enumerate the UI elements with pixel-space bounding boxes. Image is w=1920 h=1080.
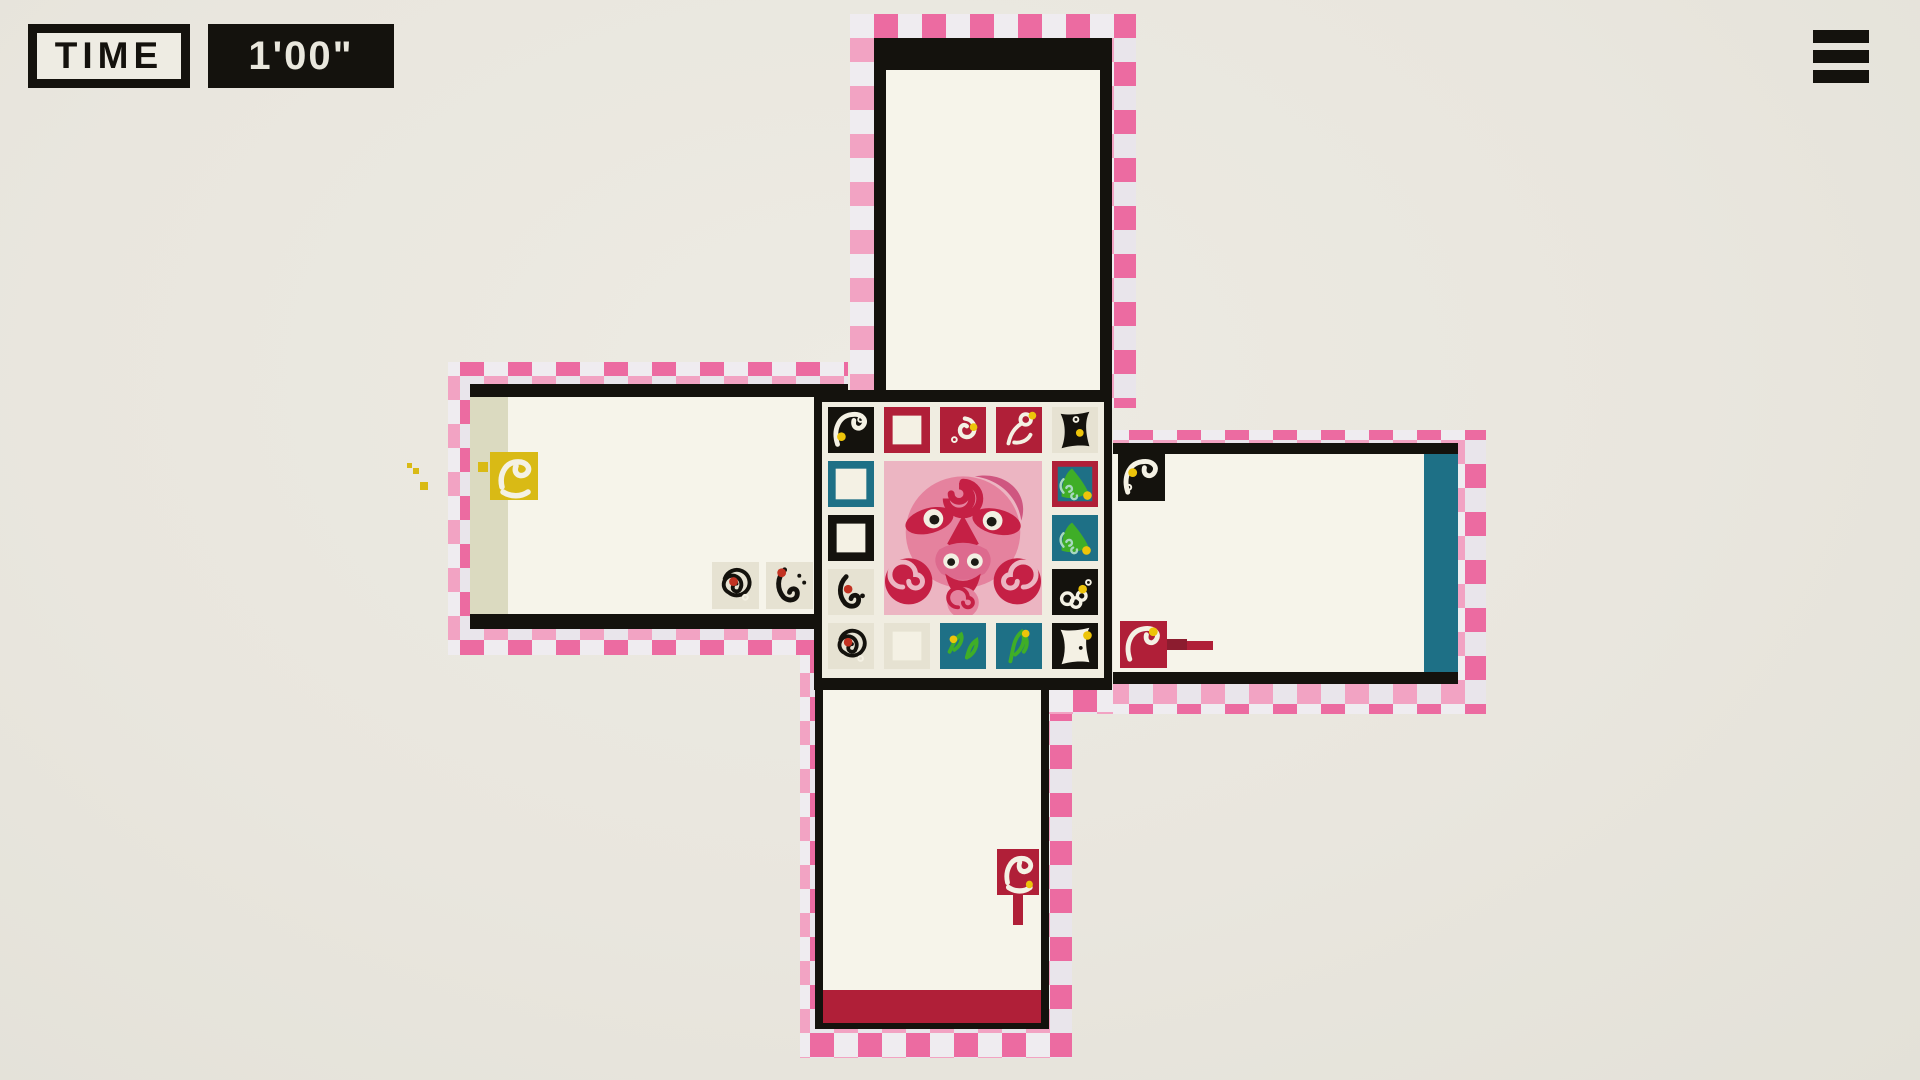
hamburger-menu-icon[interactable]	[1813, 30, 1869, 85]
hamburger-bar	[1813, 30, 1869, 43]
room-top-floor	[886, 70, 1100, 408]
timer-value: 1'00"	[208, 24, 394, 88]
hamburger-bar	[1813, 70, 1869, 83]
duck-fragment	[478, 462, 488, 472]
tile-cream-frame[interactable]	[884, 623, 930, 669]
tile-red-teal-green-bird[interactable]	[1052, 461, 1098, 507]
spear-bar-dark	[1167, 639, 1187, 650]
hamburger-bar	[1813, 50, 1869, 63]
game-screen: TIME 1'00"	[0, 0, 1920, 1080]
tile-teal-frame[interactable]	[828, 461, 874, 507]
pickup-hook-red-dot	[766, 562, 813, 609]
speck-1	[407, 463, 412, 468]
tile-black-ring-cluster[interactable]	[1052, 569, 1098, 615]
speck-2	[413, 468, 419, 474]
room-left-beige-stripe	[470, 397, 508, 614]
enemy-red-spear-duck	[1120, 621, 1167, 668]
flag-red-duck	[997, 849, 1039, 895]
tile-teal-green-bird[interactable]	[1052, 515, 1098, 561]
tile-red-comma[interactable]	[940, 407, 986, 453]
tile-black-swan[interactable]	[828, 407, 874, 453]
room-bottom-red-floor-bar	[823, 990, 1041, 1023]
speck-3	[420, 482, 428, 490]
flag-stem	[1013, 895, 1023, 925]
enemy-black-swan	[1118, 454, 1165, 501]
spear-bar	[1187, 641, 1213, 650]
checker-border-junction	[1049, 688, 1113, 714]
tile-teal-two-sprigs[interactable]	[940, 623, 986, 669]
central-panel-background	[822, 402, 1104, 678]
tile-cream-hook-bird[interactable]	[828, 569, 874, 615]
room-bottom-floor	[823, 688, 1041, 990]
tile-red-frame[interactable]	[884, 407, 930, 453]
tile-cream-black-wedge[interactable]	[1052, 407, 1098, 453]
tile-teal-sprig[interactable]	[996, 623, 1042, 669]
player-duck-yellow	[490, 452, 538, 500]
room-right-teal-wall	[1424, 454, 1458, 672]
central-panel	[814, 390, 1112, 690]
pink-octopus-face-art	[884, 461, 1042, 615]
tile-black-frame[interactable]	[828, 515, 874, 561]
tile-red-pin-bird[interactable]	[996, 407, 1042, 453]
tile-black-white-bird[interactable]	[1052, 623, 1098, 669]
tile-board	[822, 402, 1104, 678]
time-label: TIME	[28, 24, 190, 88]
pickup-spiral-red-dot	[712, 562, 759, 609]
tile-cream-spiral[interactable]	[828, 623, 874, 669]
